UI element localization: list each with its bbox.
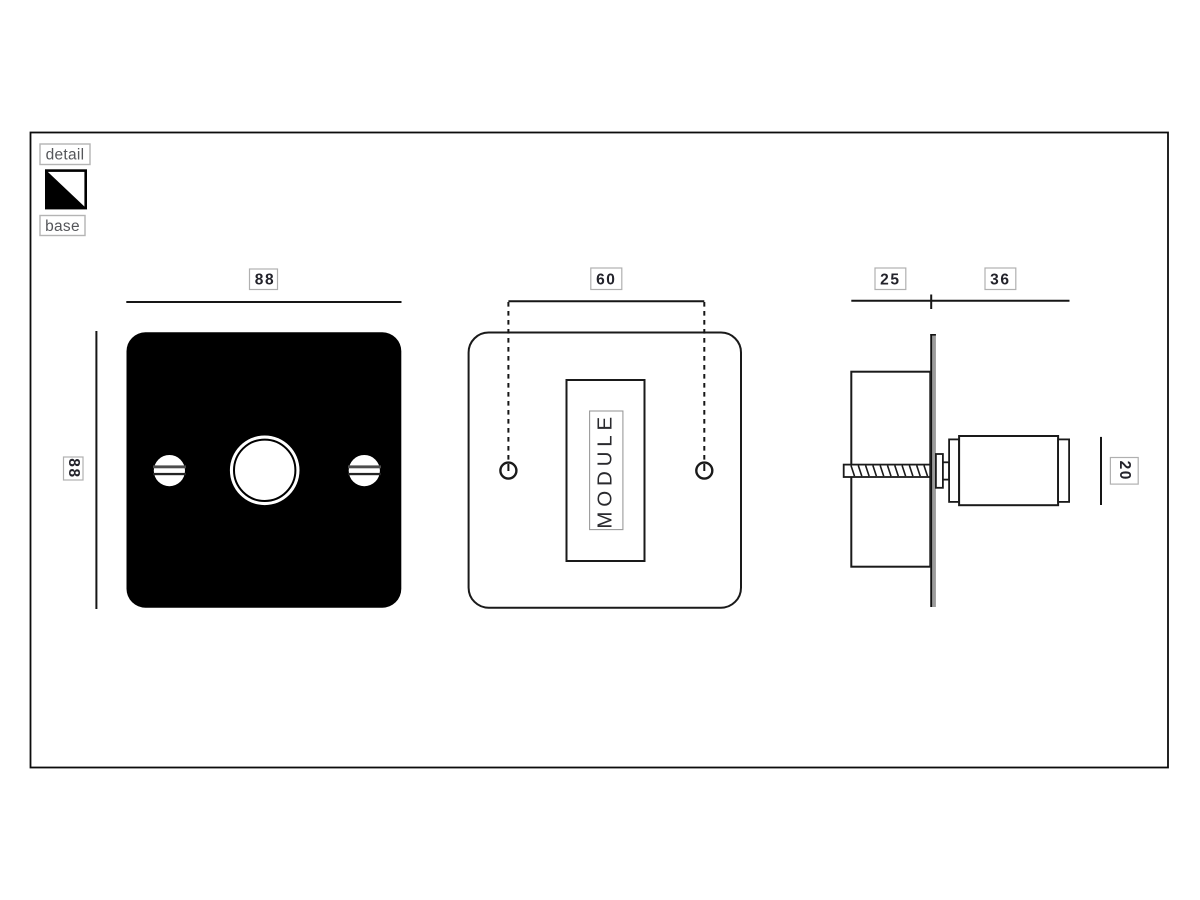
svg-text:20: 20 [1116, 461, 1133, 481]
svg-text:60: 60 [596, 272, 616, 289]
svg-text:88: 88 [255, 272, 275, 289]
svg-text:25: 25 [880, 272, 900, 289]
svg-text:88: 88 [65, 458, 82, 478]
svg-text:base: base [45, 218, 80, 235]
svg-text:MODULE: MODULE [593, 412, 616, 529]
svg-text:36: 36 [990, 272, 1010, 289]
svg-text:detail: detail [46, 147, 85, 164]
